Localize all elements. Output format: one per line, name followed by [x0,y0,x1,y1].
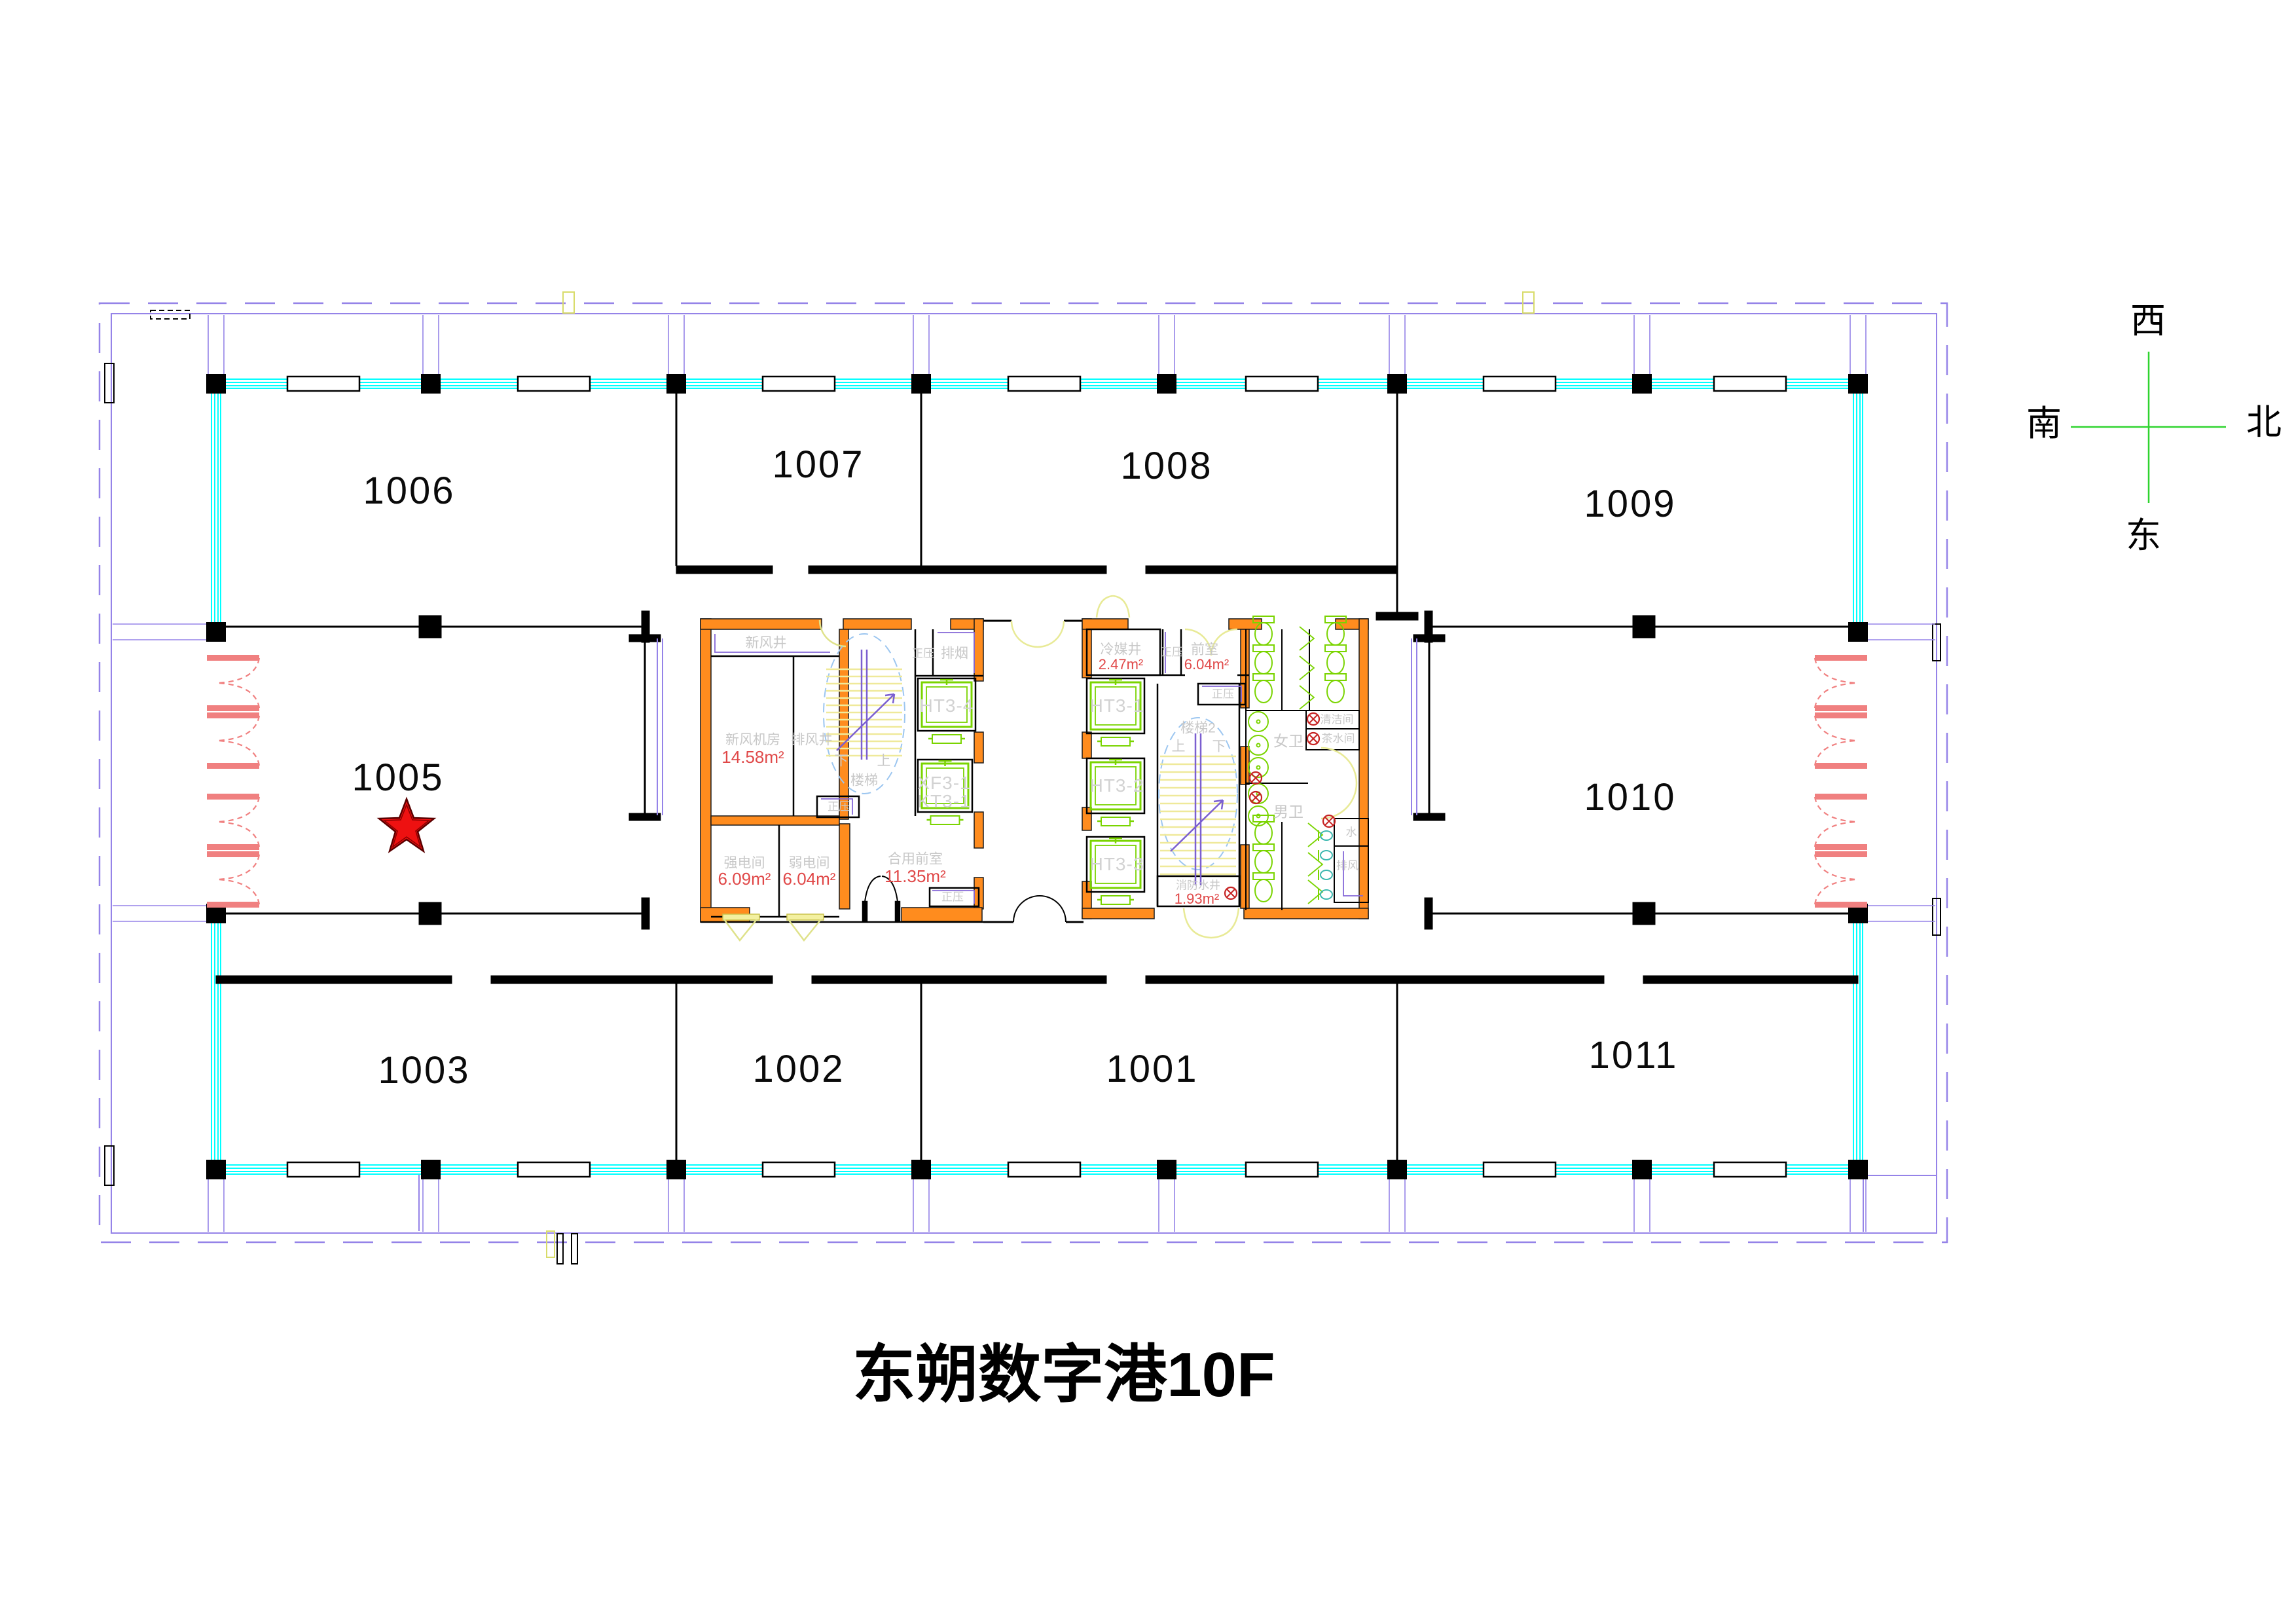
label-fresh-air-shaft: 新风井 [746,637,787,650]
label-stair-east-down: 下 [1212,740,1226,754]
label-exhaust-air-shaft: 排风井 [792,733,833,747]
label-elevator-xf3-1: XF3-1 [917,774,970,792]
label-elevator-ht3-4: HT3-4 [920,697,974,715]
label-front-room: 前室 [1191,643,1218,657]
compass [2071,352,2226,503]
label-cleaning-room: 清洁间 [1321,714,1354,726]
label-stair-west: 楼梯 [850,774,878,788]
floor-plan-page: { "title": "东朔数字港10F", "compass": { "wes… [0,0,2296,1624]
room-label-1011: 1011 [1589,1037,1679,1075]
west-facade-doors [207,655,259,908]
core-west-door-arcs [724,620,846,940]
label-stair-east: 楼梯2 [1180,722,1216,735]
room-label-1003: 1003 [378,1052,470,1090]
label-water-room: 水 [1346,827,1357,838]
label-fire-water-shaft-area: 1.93m² [1175,892,1219,906]
label-strong-electric-area: 6.09m² [718,870,771,887]
room-label-1002: 1002 [752,1050,845,1088]
stair-east-treads [1160,756,1236,874]
hall-south-door [1013,896,1066,922]
label-elevator-ht3-1: HT3-1 [1090,697,1144,715]
label-refrigerant-shaft-area: 2.47m² [1099,657,1143,672]
label-mens-wc: 男卫 [1273,805,1303,820]
label-stair-east-up: 上 [1172,740,1186,754]
east-facade-doors [1815,655,1867,908]
compass-west-label: 西 [2130,303,2166,339]
label-positive-pressure-mid-west: 正压 [828,802,850,813]
label-front-room-area: 6.04m² [1184,657,1229,672]
label-elevator-ht3-2: HT3-2 [1090,777,1144,795]
compass-north-label: 北 [2246,405,2282,440]
label-shared-front-room: 合用前室 [888,853,943,866]
room-label-1010: 1010 [1584,779,1676,817]
label-fire-water-shaft: 消防水井 [1176,880,1220,891]
compass-south-label: 南 [2026,406,2062,441]
label-fresh-air-plant-room-area: 14.58m² [721,748,784,766]
label-weak-electric-area: 6.04m² [783,870,836,887]
corridor-mullions [657,638,1417,815]
plan-title: 东朔数字港10F [852,1344,1275,1407]
label-exhaust-room: 排风 [1336,860,1358,872]
stair-west-ellipse [824,634,905,794]
label-fresh-air-plant-room: 新风机房 [725,733,780,747]
room-label-1005: 1005 [352,759,444,797]
label-refrigerant-shaft: 冷媒井 [1101,643,1142,657]
label-elevator-kt3-1: KT3-1 [917,792,970,811]
label-weak-electric-room: 弱电间 [789,857,830,870]
label-positive-pressure-bottom-west: 正压 [941,892,964,903]
label-elevator-ht3-3: HT3-3 [1090,855,1144,874]
label-positive-pressure-top-east: 正压 [1161,647,1183,658]
location-star-icon [379,799,434,851]
label-positive-pressure-mid-east: 正压 [1212,689,1234,700]
room-label-1006: 1006 [363,472,455,510]
label-smoke-exhaust: 排烟 [941,647,968,661]
label-stair-west-up: 上 [877,754,891,768]
label-tea-room: 茶水间 [1322,733,1355,745]
compass-east-label: 东 [2126,518,2161,553]
label-strong-electric-room: 强电间 [724,857,765,870]
label-womens-wc: 女卫 [1273,734,1303,749]
room-label-1009: 1009 [1584,485,1676,523]
room-label-1008: 1008 [1120,447,1212,485]
room-label-1007: 1007 [772,446,864,484]
stair-west-treads [826,669,902,756]
label-positive-pressure-top-west: 正压 [912,648,934,659]
label-shared-front-room-area: 11.35m² [884,868,945,885]
room-label-1001: 1001 [1106,1050,1198,1088]
boundary-door-mark-bottom-icon [557,1234,563,1264]
label-stair-west-down: 下 [835,754,848,768]
